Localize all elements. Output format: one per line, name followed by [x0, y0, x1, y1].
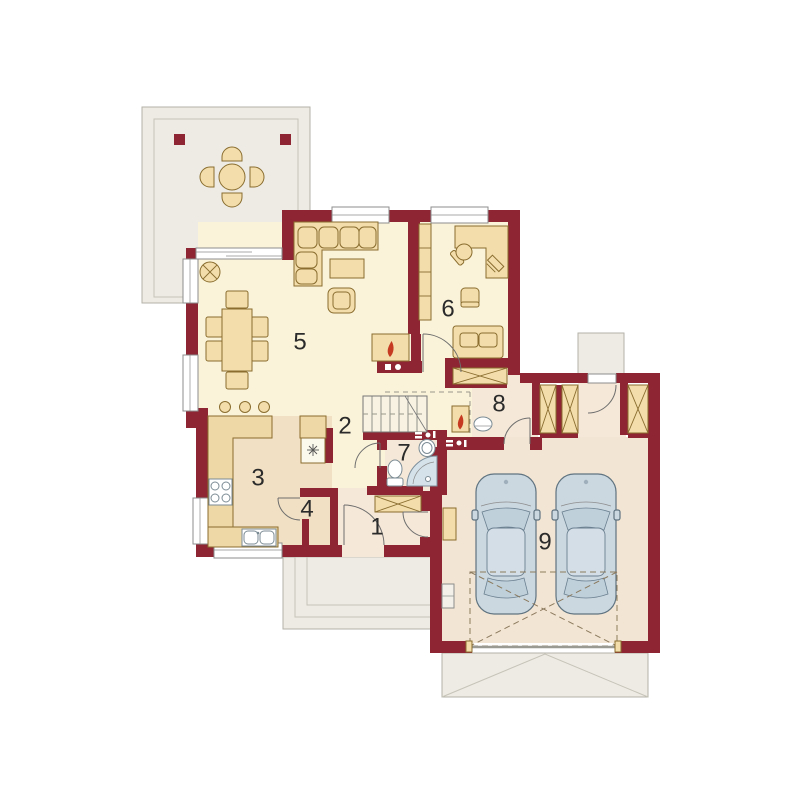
dining-chair [226, 372, 248, 389]
dining-chair [251, 317, 268, 337]
storage-closet [628, 385, 648, 433]
bar-stool [240, 402, 251, 413]
terrace-post [174, 134, 185, 145]
dining-chair [226, 291, 248, 308]
fridge [301, 438, 325, 463]
dining-chair [206, 341, 223, 361]
bookshelf [419, 224, 431, 320]
pump-icon [474, 417, 492, 431]
entry-wardrobe [375, 496, 421, 512]
kitchen-counter-fridge [300, 416, 326, 438]
dining-table [222, 309, 252, 371]
dining-chair [206, 317, 223, 337]
staircase [363, 396, 427, 432]
car [472, 474, 540, 614]
ceiling-lamp-icon [200, 262, 220, 282]
side-corridor-floor [578, 383, 626, 437]
living-room-top-window [332, 207, 389, 223]
floor-plan-canvas: 1 2 3 4 5 6 7 8 9 [0, 0, 800, 800]
boiler [452, 406, 469, 432]
office-sofa [453, 326, 503, 358]
office-stool [461, 288, 479, 307]
terrace-post [280, 134, 291, 145]
electrical-panel [442, 584, 454, 608]
garage-door-jamb [466, 641, 472, 652]
car [552, 474, 620, 614]
storage-closet [540, 385, 556, 433]
floor-plan-drawing: 1 2 3 4 5 6 7 8 9 [0, 0, 800, 800]
side-entrance-landing [578, 333, 624, 374]
garage-door-jamb [615, 641, 621, 652]
room-label-living-room: 5 [293, 328, 306, 355]
garage-apron [442, 653, 648, 697]
water-heater [443, 508, 456, 540]
bar-stool [220, 402, 231, 413]
room-label-entry-hall: 1 [370, 513, 383, 540]
room-label-pantry: 4 [300, 495, 313, 522]
room-label-utility: 8 [492, 390, 505, 417]
armchair [328, 288, 355, 313]
coffee-table [330, 259, 364, 278]
room-label-kitchen: 3 [251, 464, 264, 491]
room-label-bathroom: 7 [397, 439, 410, 466]
terrace-sliding-door [196, 248, 282, 259]
kitchen-sink [242, 529, 276, 546]
room-label-office: 6 [441, 295, 454, 322]
kitchen-left-window [193, 498, 208, 544]
dining-chair [251, 341, 268, 361]
room-label-garage: 9 [538, 528, 551, 555]
living-room-left-window [183, 259, 198, 303]
terrace-round-table [219, 164, 245, 190]
washbasin [419, 440, 435, 457]
office-top-window [431, 207, 488, 223]
storage-closet [562, 385, 578, 433]
room-label-hall: 2 [338, 412, 351, 439]
bar-stool [259, 402, 270, 413]
cooktop [209, 479, 232, 505]
dining-left-window [183, 355, 198, 411]
entrance-porch [283, 557, 455, 629]
